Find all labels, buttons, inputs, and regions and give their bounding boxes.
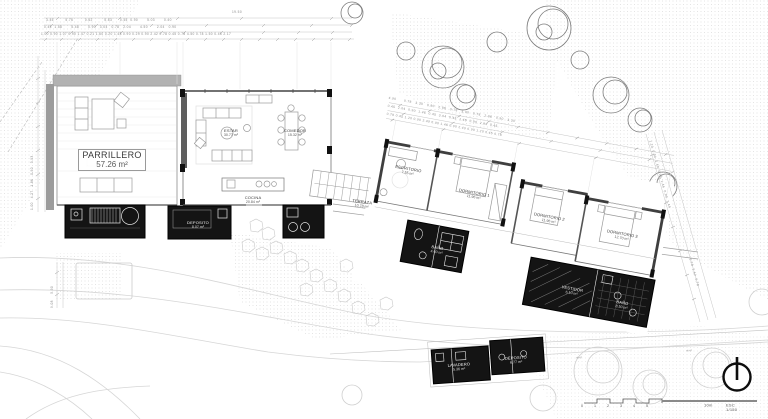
room-label-parrillero: PARRILLERO57.26 m² bbox=[62, 149, 162, 171]
room-label-comedor: COMEDOR15.32 m² bbox=[273, 129, 318, 138]
scale-tick-3: 3 bbox=[620, 404, 622, 408]
parrillero-pavilion bbox=[46, 75, 181, 210]
dim-top-row-2: 0.45 1.58 5.48 0.90 3.04 0.78 2.04 4.50 … bbox=[44, 25, 176, 29]
bbq-counter-block bbox=[65, 205, 145, 238]
room-label-deposito: DEPOSITO8.07 m² bbox=[176, 221, 221, 230]
contour-label: nivel bbox=[686, 349, 692, 352]
plan-drawing bbox=[0, 0, 768, 419]
scale-tick-2: 2 bbox=[607, 404, 609, 408]
room-label-cocina: COCINA20.84 m² bbox=[231, 196, 276, 205]
dim-bottom-left-chain: 9.08 5.90 bbox=[50, 286, 54, 308]
estar-module bbox=[180, 89, 332, 205]
scale-tick-1: 1 bbox=[594, 404, 596, 408]
scale-tick-4: 4 bbox=[633, 404, 635, 408]
scale-tick-0: 0 bbox=[581, 404, 583, 408]
room-label-estar: ESTAR30.77 m² bbox=[209, 129, 254, 138]
dim-top-row-1: 3.45 5.76 0.62 5.83 0.45 0.90 5.03 0.40 bbox=[46, 18, 172, 22]
dim-top-total: 19.50 bbox=[232, 10, 242, 14]
tree-icon bbox=[342, 385, 362, 405]
side-wall bbox=[46, 84, 54, 210]
scale-end-label: 10m bbox=[704, 403, 713, 408]
scale-label: ESC 1/150 bbox=[726, 403, 747, 412]
contour-label: nivel bbox=[576, 356, 582, 359]
sink-block bbox=[283, 205, 324, 238]
floor-plan-canvas: PARRILLERO57.26 m² ESTAR30.77 m² COMEDOR… bbox=[0, 0, 768, 419]
dim-top-row-3: 1.00 0.90 1.07 0.90 1.47 0.21 1.60 0.20 … bbox=[41, 32, 231, 36]
tree-icon bbox=[341, 2, 363, 24]
roof-band bbox=[53, 75, 181, 86]
scale-tick-5: 5 bbox=[646, 404, 648, 408]
dim-left-chain: 1.00 4.27 1.86 0.90 3.93 bbox=[30, 155, 34, 210]
